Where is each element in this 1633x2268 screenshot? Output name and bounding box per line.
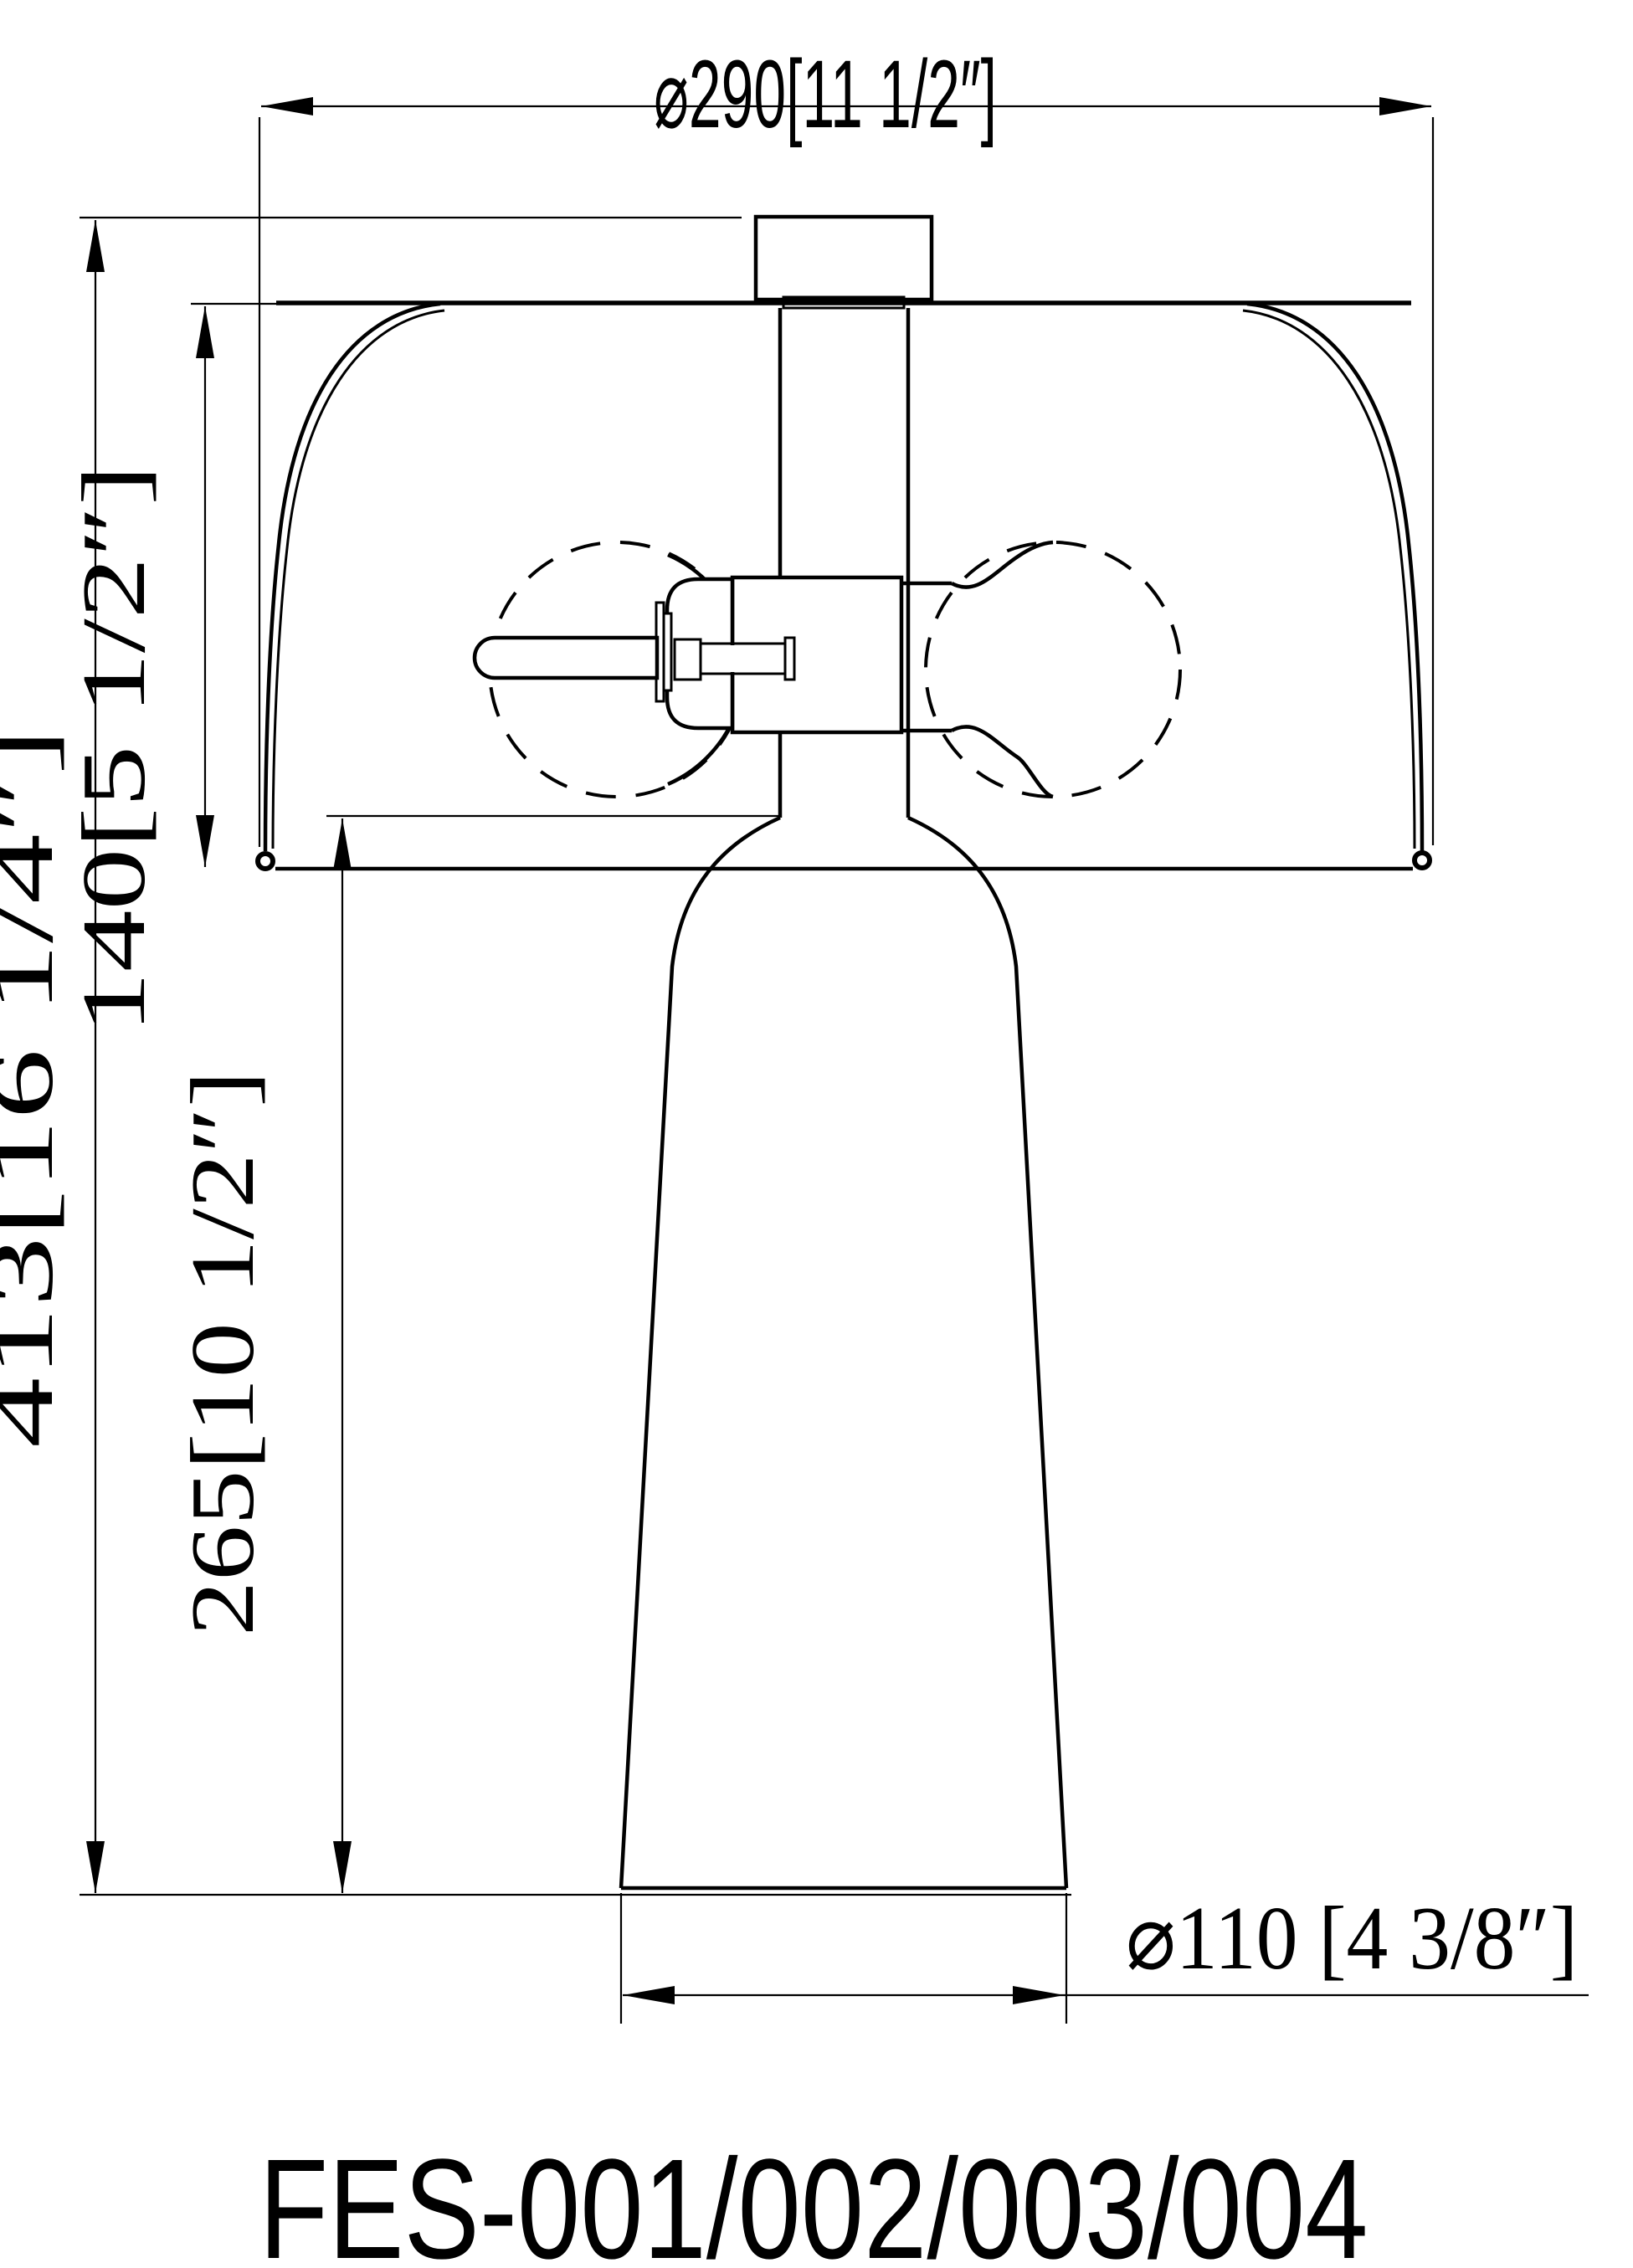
base-bell-right-curve [908,818,1066,1888]
dim-base-diameter: ⌀110 [4 3/8″] [621,1889,1589,2024]
dim413-label: 413[16 1/4″] [0,728,72,1448]
socket-assembly [475,577,901,732]
dim265-arrow-top [333,818,352,870]
dim413-arrow-top [86,220,105,272]
right-bulb-neck-top-curve [952,542,1053,588]
dim-shade-height: 140[5 1/2″] [64,304,444,1034]
shade-right-outer-curve [1247,304,1422,851]
technical-drawing-canvas: ⌀290[11 1/2″] 413[16 1/4″] 140[5 1/2″] 2… [0,0,1633,2268]
right-bulb-globe-dashed [926,542,1180,797]
top-cap [756,217,932,300]
right-bulb [901,542,1180,797]
base-bell-left-curve [621,818,780,1888]
dim290-arrow-right [1379,97,1431,115]
screw-channel-mask [716,645,783,672]
socket-washer-inner [664,613,671,690]
dim140-label: 140[5 1/2″] [64,464,164,1034]
model-number: FES-001/002/003/004 [259,2130,1369,2268]
shade-left-outer-curve [265,304,440,851]
dim140-arrow-top [196,306,214,358]
switch-rod [475,638,657,678]
screw-end-cap [785,638,794,680]
shade-left-eyelet [258,854,273,869]
socket-front-plate [675,639,701,680]
dim-base-height: 265[10 1/2″] [173,816,778,1893]
dim110-arrow-right [1013,1986,1065,2004]
dim265-arrow-bottom [333,1841,352,1893]
shade-right-eyelet [1415,853,1430,868]
dim110-label: ⌀110 [4 3/8″] [1126,1889,1578,1988]
dim265-label: 265[10 1/2″] [173,1070,273,1636]
shade-left-inner-curve [273,310,444,849]
shade-right-inner-curve [1243,310,1415,849]
dim110-arrow-left [623,1986,675,2004]
dim140-arrow-bottom [196,815,214,867]
dim413-arrow-bottom [86,1841,105,1893]
dim290-arrow-left [261,97,313,115]
dim290-label: ⌀290[11 1/2″] [654,41,997,148]
